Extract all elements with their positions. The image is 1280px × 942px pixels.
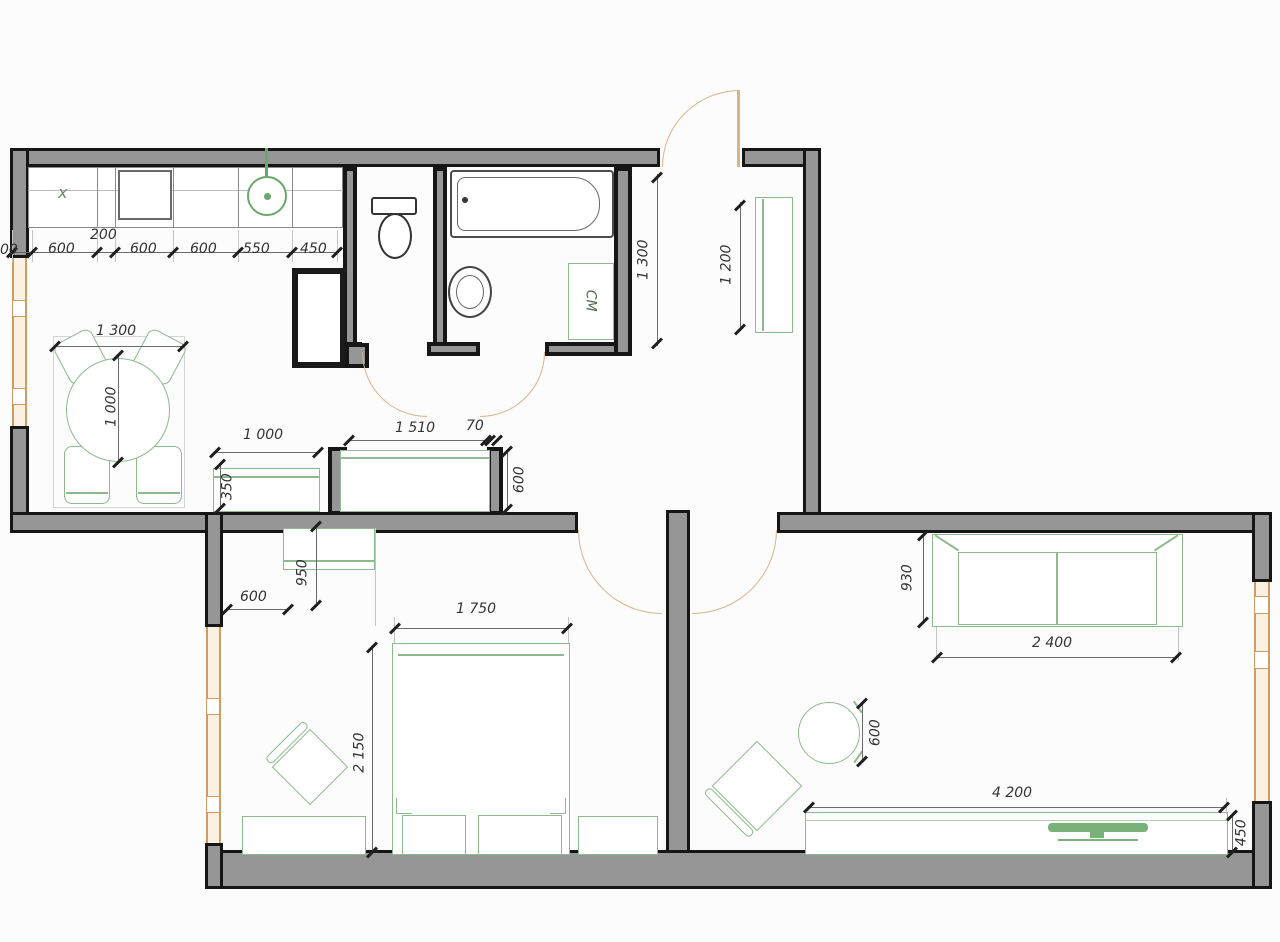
bath-sink-basin: [456, 275, 484, 309]
dim-label: 950: [295, 553, 310, 593]
kitchen-window-mullion: [12, 300, 26, 317]
washing-machine-label: СМ: [582, 281, 597, 321]
dim-line: [394, 628, 568, 629]
kitchen-counter-divider: [173, 167, 174, 228]
bedroom-nightstand: [578, 816, 658, 855]
ventilation-duct: [292, 268, 346, 368]
dining-chair-back-line: [138, 492, 180, 494]
tv-base-line: [1058, 839, 1138, 841]
kitchen-counter-divider: [115, 167, 116, 228]
dim-line: [213, 452, 320, 453]
bed-pillow-left: [402, 815, 466, 855]
dim-label: 2 150: [352, 733, 367, 773]
living-right-wall-top: [1252, 512, 1272, 582]
extension-line: [375, 528, 376, 626]
dim-line: [923, 533, 924, 623]
extension-line: [568, 617, 569, 643]
living-top-wall: [777, 512, 1272, 533]
bedroom-window-mullion: [206, 796, 220, 813]
bedroom-left-wall-bottom: [205, 843, 223, 889]
dining-chair-back-line: [66, 492, 108, 494]
bed-pillow-right: [478, 815, 562, 855]
bedroom-window-mullion: [206, 698, 220, 715]
living-armchair: [712, 741, 803, 832]
sofa-divider: [1056, 552, 1058, 625]
living-door-arc: [692, 530, 777, 614]
dim-label: 600: [130, 242, 157, 257]
bedroom-door-arc: [578, 530, 662, 614]
dim-label: 2 400: [1032, 636, 1072, 651]
bath-right-wall: [614, 167, 632, 356]
bedroom-armchair: [272, 729, 348, 805]
floor-plan: x СМ: [0, 0, 1280, 942]
living-window-mullion: [1254, 651, 1269, 669]
hall-unit: [340, 450, 490, 512]
dim-line: [862, 701, 863, 763]
dim-label: 1 200: [719, 245, 734, 285]
bed-corner-notch: [396, 798, 412, 814]
kitchen-counter-divider: [97, 167, 98, 228]
dim-line: [657, 174, 658, 346]
dim-line: [507, 449, 508, 511]
dim-label: 930: [900, 558, 915, 598]
dim-label: 450: [300, 242, 327, 257]
dim-line: [936, 657, 1178, 658]
kitchen-counter-divider: [292, 167, 293, 228]
dim-line: [316, 524, 317, 606]
kitchen-counter: [28, 167, 343, 228]
toilet-bowl: [378, 213, 412, 259]
bedroom-dresser: [242, 816, 366, 855]
dim-label: 200: [90, 228, 117, 243]
kitchen-appliance: [118, 170, 172, 220]
dim-line: [55, 346, 183, 347]
extension-line: [32, 230, 33, 262]
bed-mattress-line: [398, 654, 564, 656]
wc-bath-divider-wall: [433, 167, 447, 352]
dim-label: 1 000: [104, 387, 119, 427]
kitchen-sink-drain: [264, 193, 271, 200]
hallway-right-wall: [803, 148, 821, 533]
dim-line: [740, 202, 741, 331]
kitchen-top-wall: [10, 148, 660, 167]
dim-label: 70: [466, 419, 484, 434]
living-window: [1254, 582, 1270, 801]
dim-label: 600: [240, 590, 267, 605]
dim-label-partial: 00: [0, 243, 18, 258]
extension-line: [238, 230, 239, 262]
dim-label: 450: [1234, 813, 1249, 853]
dim-label: 1 000: [243, 428, 283, 443]
center-partition: [666, 510, 690, 857]
dim-line: [807, 807, 1227, 808]
tv-cabinet-line: [805, 820, 1228, 821]
dim-label: 600: [48, 242, 75, 257]
dim-label: 1 750: [456, 602, 496, 617]
kitchen-counter-divider: [238, 167, 239, 228]
bathtub-inner: [457, 177, 600, 231]
extension-line: [173, 230, 174, 262]
entry-door-leaf: [737, 90, 740, 167]
dim-label: 550: [243, 242, 270, 257]
bedroom-left-wall-top: [205, 512, 223, 627]
dim-label: 1 300: [96, 324, 136, 339]
dim-label: 350: [220, 467, 235, 507]
wc-door-arc: [362, 352, 427, 417]
dim-label: 4 200: [992, 786, 1032, 801]
bed-corner-notch: [550, 798, 566, 814]
hall-wardrobe-line: [762, 199, 764, 331]
bathtub-drain: [462, 197, 468, 203]
dim-label: 600: [868, 713, 883, 753]
round-chair: [798, 702, 860, 764]
living-armchair-back: [703, 787, 755, 839]
hob-mark: x: [58, 184, 67, 202]
dim-label: 600: [190, 242, 217, 257]
bedroom-armchair-back: [265, 720, 310, 765]
wc-bath-bottom-wall-mid: [427, 342, 480, 356]
dim-label: 1 300: [636, 240, 651, 280]
dim-line: [226, 609, 288, 610]
dim-label: 600: [512, 460, 527, 500]
hall-wardrobe: [755, 197, 793, 333]
dim-line: [349, 440, 486, 441]
bathroom-door-arc: [480, 352, 545, 417]
entry-door-arc: [662, 90, 740, 167]
tv-stand: [1090, 831, 1104, 838]
hall-unit-line: [340, 457, 490, 459]
tv-cabinet: [805, 812, 1228, 855]
living-window-mullion: [1254, 596, 1269, 614]
living-right-wall-bottom: [1252, 801, 1272, 889]
extension-line: [292, 230, 293, 262]
kitchen-window-mullion: [12, 388, 26, 405]
extension-line: [337, 230, 338, 262]
sofa-seat: [958, 552, 1157, 625]
kitchen-counter-midline: [28, 190, 343, 191]
dim-line: [372, 645, 373, 853]
dim-label: 1 510: [395, 421, 435, 436]
